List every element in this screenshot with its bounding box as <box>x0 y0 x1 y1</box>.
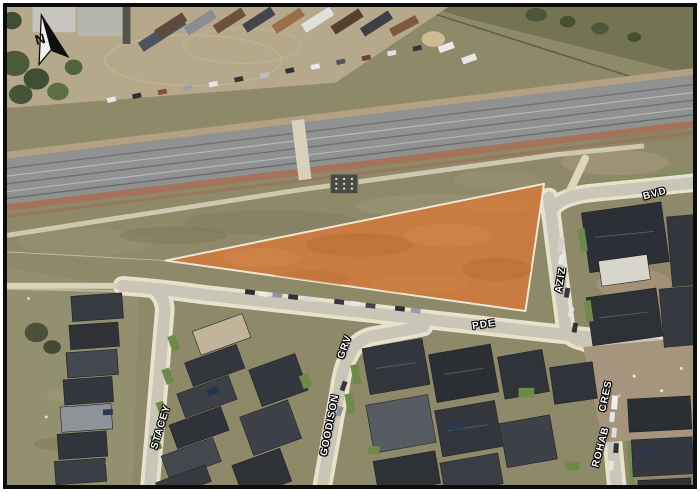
fenced-compound <box>330 174 357 193</box>
map-frame: BVDAZIZPDEGRVGOODISONSTACEYCRESROHAB N <box>0 0 700 492</box>
aerial-photo: BVDAZIZPDEGRVGOODISONSTACEYCRESROHAB N <box>3 3 697 489</box>
north-arrow-icon: N <box>26 12 70 72</box>
aerial-scene <box>7 7 693 485</box>
